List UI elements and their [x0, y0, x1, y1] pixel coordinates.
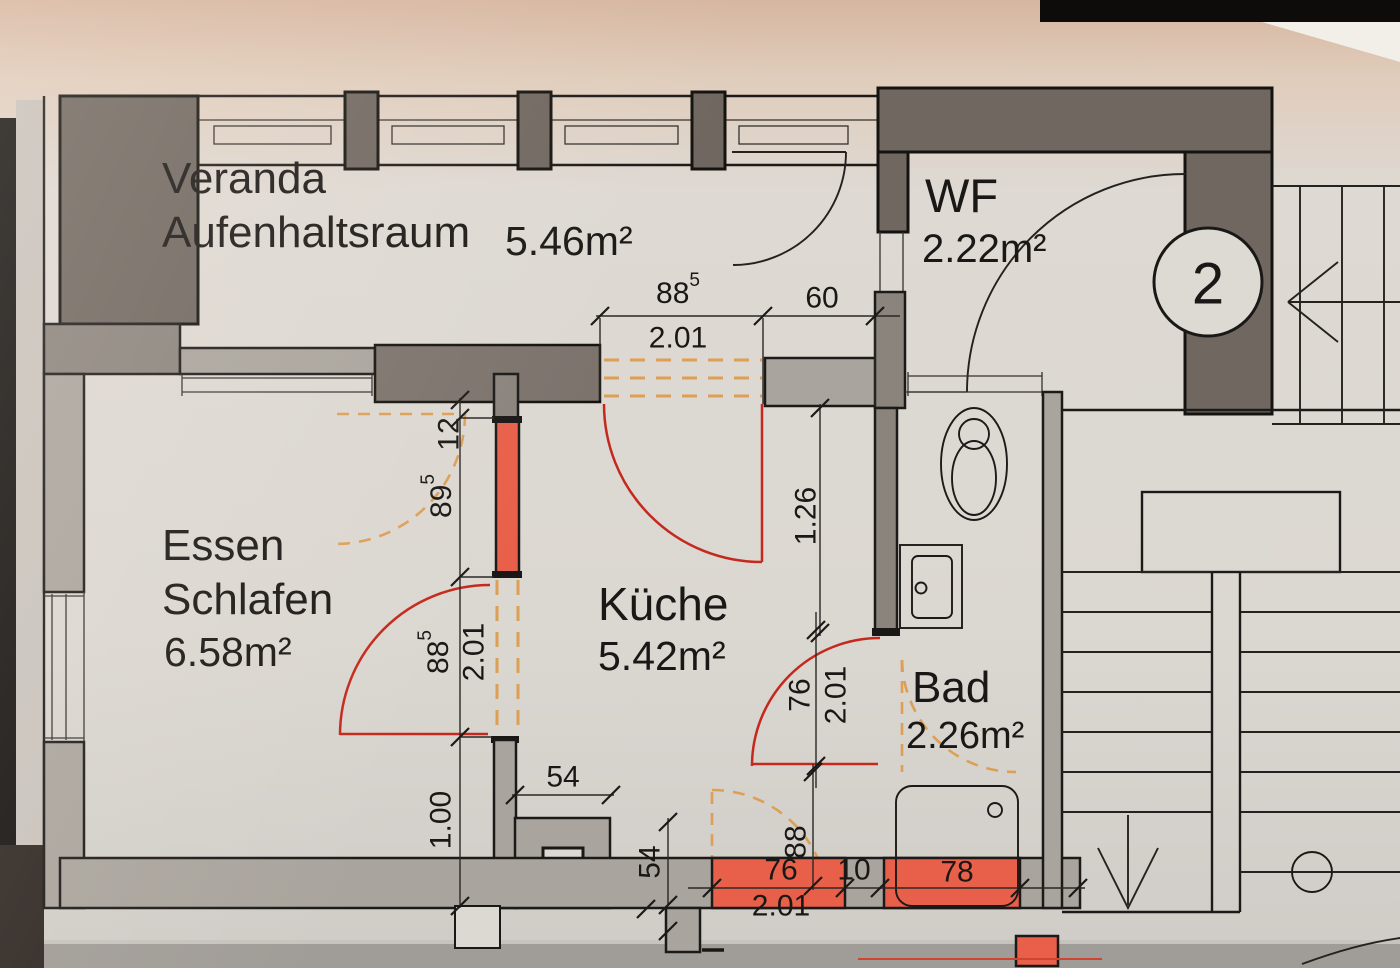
- dim-bottom-pier: 10: [837, 854, 870, 887]
- kitchen-opening-demolition-dashes: [604, 360, 762, 396]
- entrance-door-arc: [967, 174, 1185, 392]
- dim-top-right: 60: [805, 282, 838, 315]
- kitchen-door-arc: [604, 404, 762, 562]
- interior-wall-row: [180, 345, 878, 406]
- dim-bad-door-m: 2.01: [820, 666, 853, 724]
- dim-left-opening: 885: [415, 630, 455, 674]
- stair-wall: [1043, 392, 1062, 908]
- bad-top-window: [908, 372, 1042, 396]
- window-post: [692, 92, 725, 169]
- kueche-bad-wall: [872, 408, 900, 636]
- dim-bottom-shower: 78: [940, 856, 973, 889]
- dim-bottom-m: 2.01: [752, 890, 810, 923]
- dim-left-lower: 1.00: [425, 791, 458, 849]
- window-post: [518, 92, 551, 169]
- dim-kueche-width: 1.26: [790, 487, 823, 545]
- floor-plan-drawing: 2: [0, 0, 1400, 968]
- unit-number-circle: 2: [1154, 228, 1262, 336]
- room-labels: Veranda Aufenhaltsraum 5.46m² WF 2.22m² …: [162, 154, 1047, 757]
- stair-down-arrow: [1098, 815, 1158, 908]
- room-label-veranda: Veranda: [162, 154, 326, 203]
- toilet-fixture: [941, 408, 1007, 520]
- room-area-bad: 2.26m²: [906, 715, 1024, 757]
- dim-bottom-door: 76: [764, 854, 797, 887]
- room-label-wf: WF: [925, 169, 998, 222]
- dim-bad-door: 76: [784, 678, 817, 711]
- sink-fixture: [900, 545, 962, 628]
- dim-top-opening-m: 2.01: [649, 322, 707, 355]
- dim-top-opening: 885: [656, 270, 700, 310]
- veranda-wf-door-arc: [732, 152, 846, 265]
- room-label-aufenhaltsraum: Aufenhaltsraum: [162, 208, 470, 257]
- room-label-essen: Essen: [162, 521, 284, 570]
- unit-number: 2: [1192, 252, 1224, 317]
- window-post: [345, 92, 378, 169]
- room-label-bad: Bad: [912, 663, 990, 712]
- dim-column-width: 54: [546, 761, 579, 794]
- stair-bottom-curve: [1302, 938, 1400, 964]
- room-label-kueche: Küche: [598, 578, 728, 630]
- room-label-schlafen: Schlafen: [162, 575, 333, 624]
- dim-column-height: 54: [634, 845, 667, 878]
- room-area-veranda: 5.46m²: [505, 218, 633, 264]
- stairs-upper-right: [1272, 186, 1400, 424]
- dim-left-opening-m: 2.01: [458, 623, 491, 681]
- new-wall-red: [1016, 936, 1058, 966]
- room-area-kueche: 5.42m²: [598, 633, 726, 679]
- room-area-essen: 6.58m²: [164, 629, 292, 675]
- new-wall-red: [496, 420, 519, 574]
- dim-left-gap: 12: [433, 417, 466, 450]
- floor-plan-photo: 2: [0, 0, 1400, 968]
- dim-left-upper: 895: [418, 474, 458, 518]
- stair-steps-left: [1062, 572, 1212, 812]
- room-area-wf: 2.22m²: [922, 227, 1047, 271]
- stair-steps-right: [1240, 572, 1400, 812]
